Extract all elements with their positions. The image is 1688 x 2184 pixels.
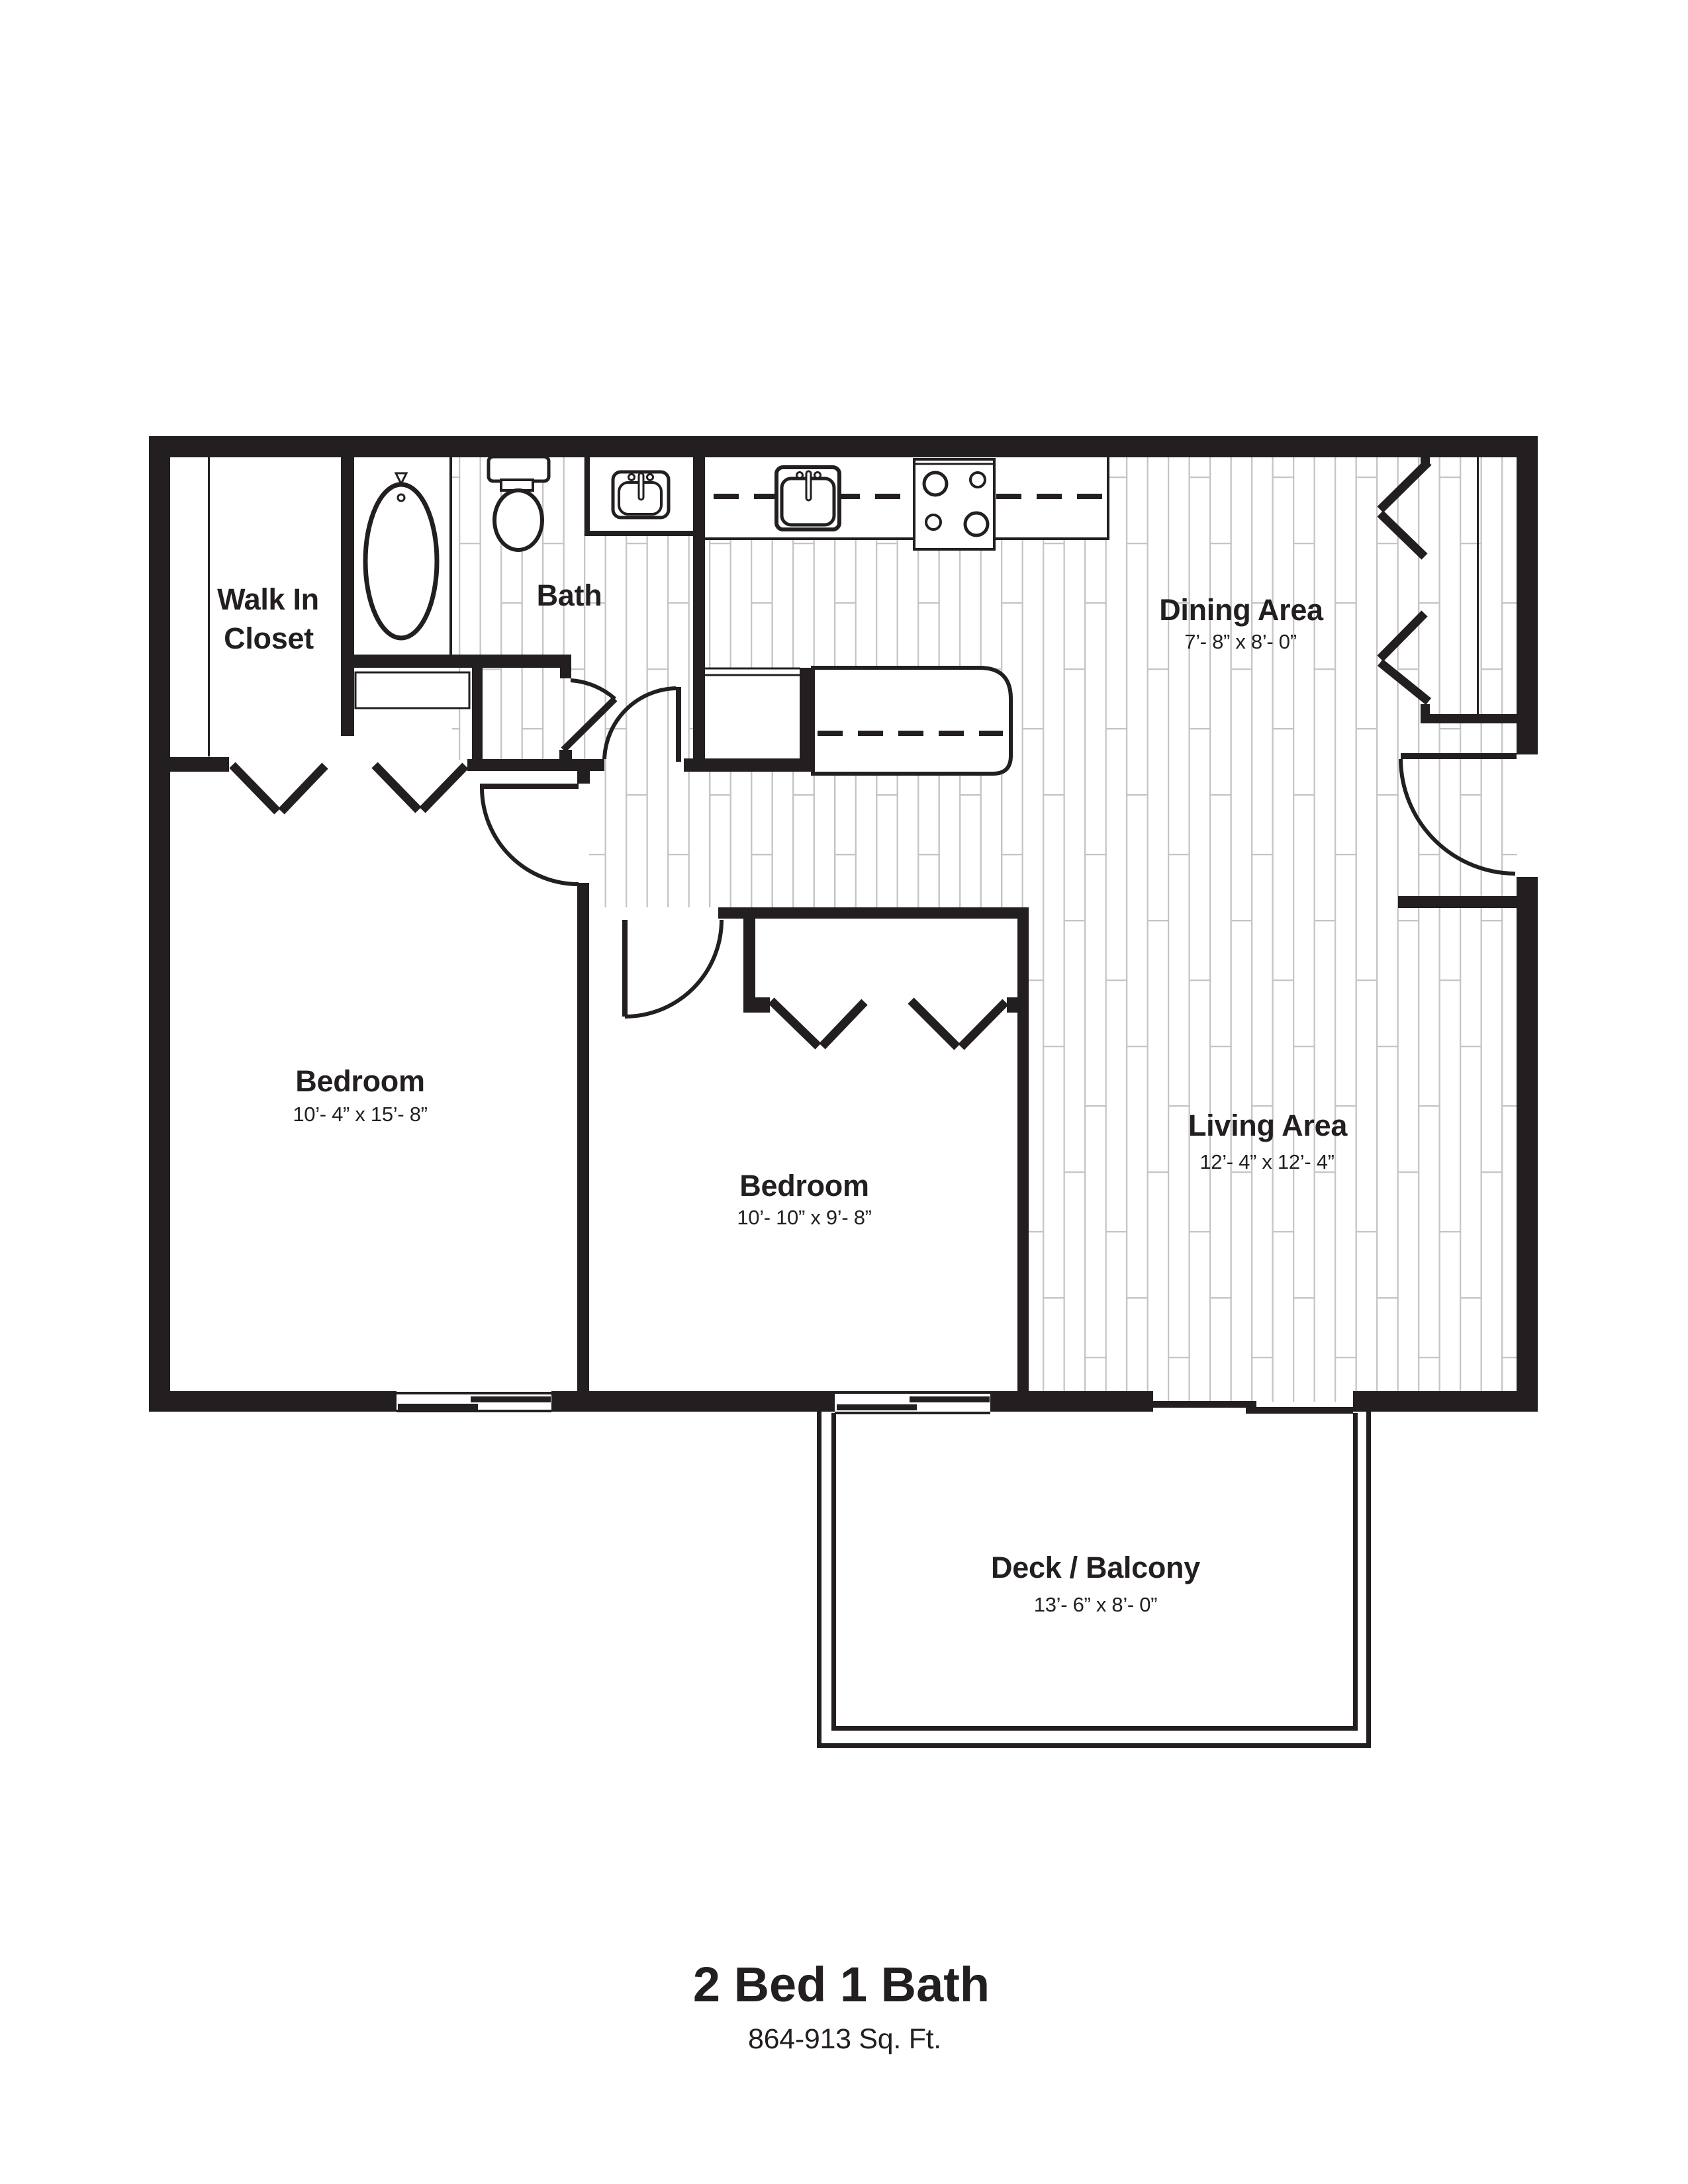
svg-text:Bedroom: Bedroom <box>739 1169 868 1203</box>
svg-text:7’- 8” x 8’- 0”: 7’- 8” x 8’- 0” <box>1184 630 1296 653</box>
svg-text:Walk In: Walk In <box>217 582 319 616</box>
svg-text:Living Area: Living Area <box>1188 1109 1348 1142</box>
svg-text:13’- 6” x 8’- 0”: 13’- 6” x 8’- 0” <box>1034 1593 1157 1616</box>
svg-text:864-913 Sq. Ft.: 864-913 Sq. Ft. <box>748 2023 941 2055</box>
svg-text:12’- 4” x 12’- 4”: 12’- 4” x 12’- 4” <box>1199 1150 1334 1173</box>
svg-text:Deck / Balcony: Deck / Balcony <box>991 1551 1200 1584</box>
svg-text:Bath: Bath <box>537 578 602 612</box>
svg-text:Closet: Closet <box>224 621 314 655</box>
svg-text:Dining Area: Dining Area <box>1159 593 1324 627</box>
svg-text:10’- 10” x 9’- 8”: 10’- 10” x 9’- 8” <box>737 1206 871 1229</box>
svg-text:Bedroom: Bedroom <box>295 1064 424 1098</box>
svg-text:10’- 4” x 15’- 8”: 10’- 4” x 15’- 8” <box>293 1103 427 1126</box>
svg-text:2 Bed 1 Bath: 2 Bed 1 Bath <box>693 1957 990 2012</box>
